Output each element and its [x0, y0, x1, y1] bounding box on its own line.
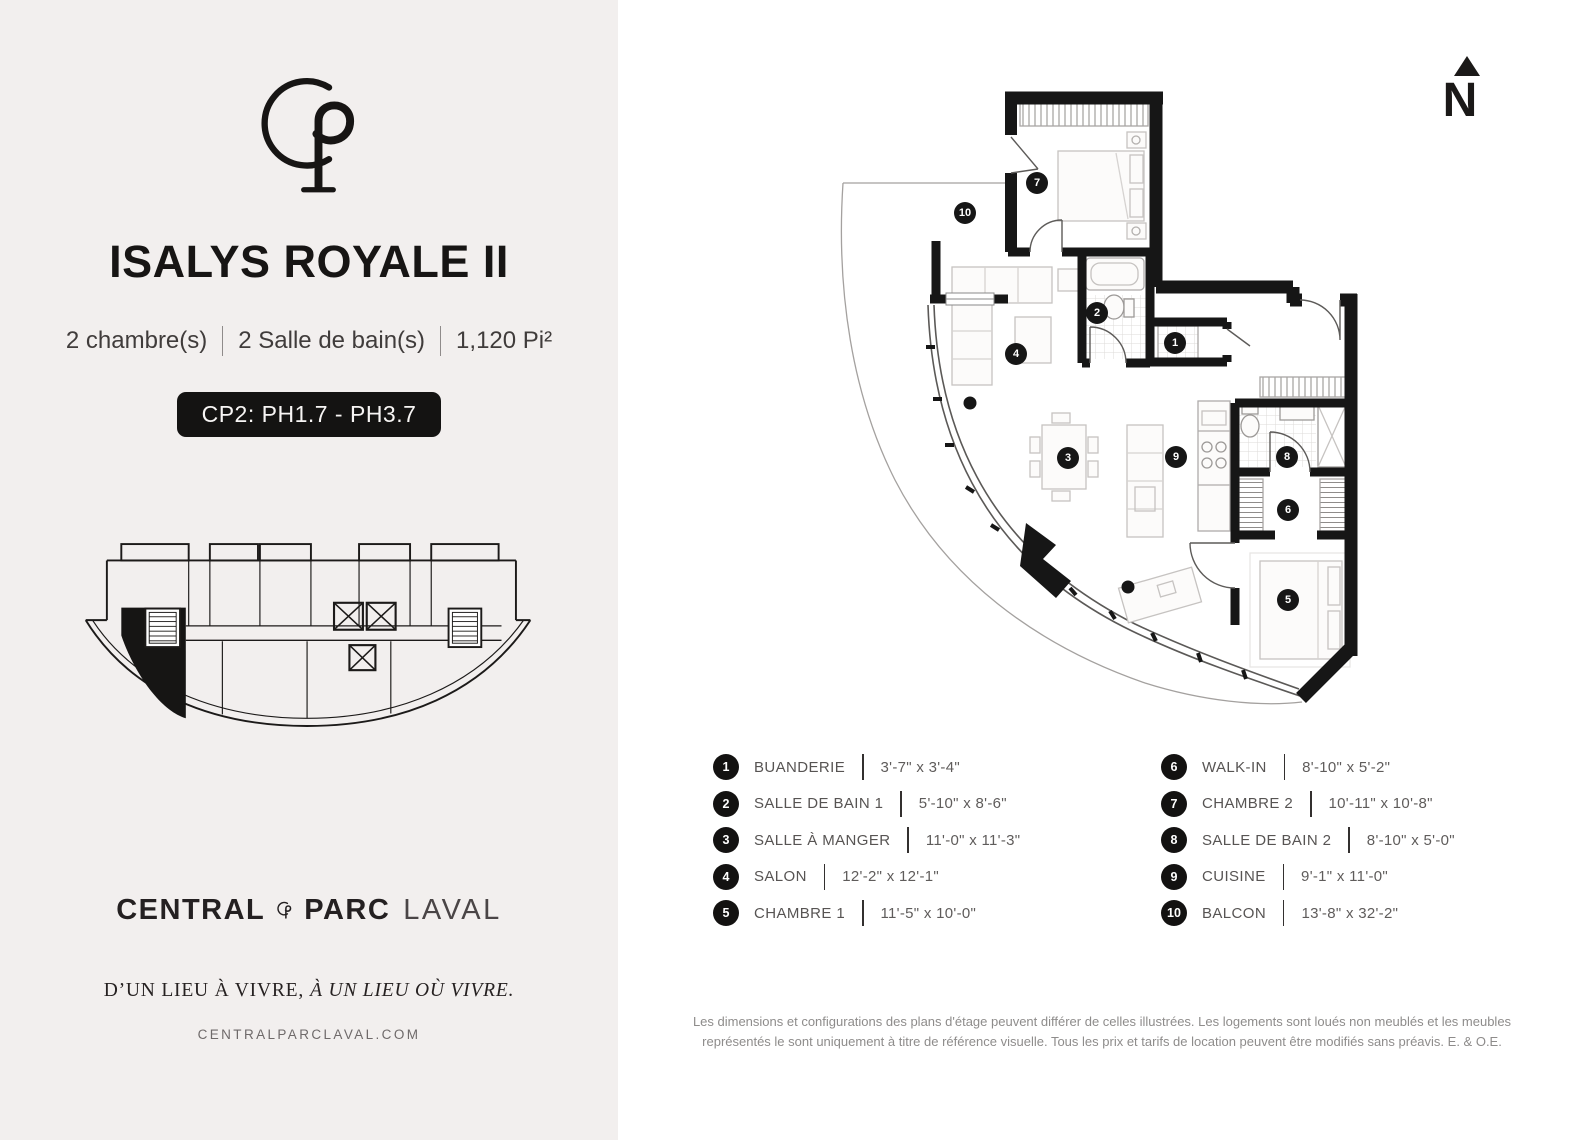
legend-room-dims: 3'-7" x 3'-4" — [881, 759, 960, 776]
marker-salle-a-manger: 3 — [1057, 447, 1079, 469]
marker-chambre-1: 5 — [1277, 589, 1299, 611]
unit-code-badge: CP2: PH1.7 - PH3.7 — [177, 392, 442, 437]
floor-plan-drawing: 1 2 3 4 5 6 7 8 9 10 — [690, 55, 1390, 715]
svg-text:9: 9 — [1173, 451, 1179, 463]
elevator-icon — [334, 603, 396, 670]
legend-divider — [1348, 827, 1349, 853]
svg-text:1: 1 — [1172, 337, 1178, 349]
legend-room-dims: 10'-11" x 10'-8" — [1329, 795, 1433, 812]
legend-divider — [1283, 864, 1284, 890]
wall-windows — [946, 293, 994, 305]
legend-number-badge: 2 — [713, 791, 739, 817]
north-arrow: N — [1430, 56, 1490, 126]
brand-laval: LAVAL — [403, 894, 501, 927]
svg-text:3: 3 — [1065, 452, 1071, 464]
legend-number-badge: 8 — [1161, 827, 1187, 853]
plan-panel: N — [618, 0, 1594, 1140]
legend-divider — [862, 900, 863, 926]
svg-text:2: 2 — [1094, 307, 1100, 319]
disclaimer-text: Les dimensions et configurations des pla… — [666, 1012, 1538, 1052]
legend-room-name: BUANDERIE — [754, 759, 845, 776]
spec-bedrooms: 2 chambre(s) — [66, 327, 207, 355]
legend-item: 6WALK-IN8'-10" x 5'-2" — [1161, 754, 1455, 780]
legend-room-name: CHAMBRE 1 — [754, 905, 845, 922]
marker-chambre-2: 7 — [1026, 172, 1048, 194]
svg-text:8: 8 — [1284, 451, 1290, 463]
unit-badge-wrap: CP2: PH1.7 - PH3.7 — [0, 392, 618, 437]
legend-item: 8SALLE DE BAIN 28'-10" x 5'-0" — [1161, 827, 1455, 853]
legend-item: 9CUISINE9'-1" x 11'-0" — [1161, 864, 1455, 890]
tagline-italic: À UN LIEU OÙ VIVRE. — [310, 980, 514, 1001]
info-panel: ISALYS ROYALE II 2 chambre(s) 2 Salle de… — [0, 0, 618, 1140]
legend-room-name: CUISINE — [1202, 868, 1266, 885]
marker-salle-de-bain-2: 8 — [1276, 446, 1298, 468]
north-label: N — [1430, 76, 1490, 126]
legend-divider — [900, 791, 901, 817]
marker-walk-in: 6 — [1277, 499, 1299, 521]
svg-text:6: 6 — [1285, 504, 1291, 516]
svg-text:7: 7 — [1034, 177, 1040, 189]
legend-item: 1BUANDERIE3'-7" x 3'-4" — [713, 754, 1020, 780]
marker-cuisine: 9 — [1165, 446, 1187, 468]
legend-item: 7CHAMBRE 210'-11" x 10'-8" — [1161, 791, 1455, 817]
svg-text:4: 4 — [1013, 348, 1020, 360]
legend-room-name: SALLE DE BAIN 2 — [1202, 832, 1331, 849]
brand-logo — [0, 72, 618, 205]
legend-number-badge: 4 — [713, 864, 739, 890]
legend-number-badge: 10 — [1161, 900, 1187, 926]
legend-divider — [1310, 791, 1311, 817]
column-dot — [1122, 581, 1135, 594]
legend-number-badge: 6 — [1161, 754, 1187, 780]
building-key-plan — [78, 518, 540, 728]
legend-room-dims: 12'-2" x 12'-1" — [842, 868, 939, 885]
legend-column-1: 1BUANDERIE3'-7" x 3'-4" 2SALLE DE BAIN 1… — [713, 754, 1020, 926]
svg-text:5: 5 — [1285, 594, 1291, 606]
legend-divider — [862, 754, 863, 780]
legend-room-dims: 5'-10" x 8'-6" — [919, 795, 1007, 812]
tagline-regular: D’UN LIEU À VIVRE, — [104, 980, 304, 1001]
legend-item: 10BALCON13'-8" x 32'-2" — [1161, 900, 1455, 926]
website-url: CENTRALPARCLAVAL.COM — [0, 1027, 618, 1042]
legend-room-name: SALON — [754, 868, 807, 885]
marker-balcon: 10 — [954, 202, 976, 224]
north-triangle-icon — [1454, 56, 1480, 76]
floorplan-flyer: { "left_panel": { "title": "ISALYS ROYAL… — [0, 0, 1594, 1140]
column-dot — [964, 397, 977, 410]
legend-item: 5CHAMBRE 111'-5" x 10'-0" — [713, 900, 1020, 926]
legend-divider — [1283, 900, 1284, 926]
page-title: ISALYS ROYALE II — [0, 236, 618, 288]
legend-room-dims: 8'-10" x 5'-2" — [1302, 759, 1390, 776]
brand-parc: PARC — [304, 894, 390, 927]
legend-number-badge: 7 — [1161, 791, 1187, 817]
marker-salle-de-bain-1: 2 — [1086, 302, 1108, 324]
legend-room-name: CHAMBRE 2 — [1202, 795, 1293, 812]
legend-number-badge: 5 — [713, 900, 739, 926]
legend-room-name: SALLE À MANGER — [754, 832, 890, 849]
legend-room-dims: 13'-8" x 32'-2" — [1301, 905, 1398, 922]
legend-room-name: SALLE DE BAIN 1 — [754, 795, 883, 812]
legend-number-badge: 1 — [713, 754, 739, 780]
cp-monogram-icon — [251, 72, 367, 200]
unit-specs: 2 chambre(s) 2 Salle de bain(s) 1,120 Pi… — [0, 326, 618, 356]
brand-tagline: D’UN LIEU À VIVRE,À UN LIEU OÙ VIVRE. — [0, 980, 618, 1002]
legend-room-dims: 8'-10" x 5'-0" — [1367, 832, 1455, 849]
legend-room-name: BALCON — [1202, 905, 1266, 922]
legend-number-badge: 3 — [713, 827, 739, 853]
marker-buanderie: 1 — [1164, 332, 1186, 354]
spec-divider — [440, 326, 441, 356]
legend-item: 2SALLE DE BAIN 15'-10" x 8'-6" — [713, 791, 1020, 817]
spec-divider — [222, 326, 223, 356]
spec-area: 1,120 Pi² — [456, 327, 552, 355]
brand-wordmark: CENTRAL PARC LAVAL — [0, 894, 618, 927]
legend-item: 4SALON12'-2" x 12'-1" — [713, 864, 1020, 890]
wall-step — [1020, 523, 1071, 598]
legend-room-dims: 11'-0" x 11'-3" — [926, 832, 1021, 849]
svg-text:10: 10 — [959, 207, 971, 219]
brand-central: CENTRAL — [116, 894, 265, 927]
spec-bathrooms: 2 Salle de bain(s) — [238, 327, 425, 355]
legend-divider — [907, 827, 908, 853]
legend-room-name: WALK-IN — [1202, 759, 1267, 776]
legend-divider — [1284, 754, 1285, 780]
legend-item: 3SALLE À MANGER11'-0" x 11'-3" — [713, 827, 1020, 853]
marker-salon: 4 — [1005, 343, 1027, 365]
legend-number-badge: 9 — [1161, 864, 1187, 890]
legend-room-dims: 9'-1" x 11'-0" — [1301, 868, 1388, 885]
legend-column-2: 6WALK-IN8'-10" x 5'-2" 7CHAMBRE 210'-11"… — [1161, 754, 1455, 926]
legend-divider — [824, 864, 825, 890]
cp-monogram-small-icon — [276, 900, 293, 921]
legend-room-dims: 11'-5" x 10'-0" — [881, 905, 977, 922]
